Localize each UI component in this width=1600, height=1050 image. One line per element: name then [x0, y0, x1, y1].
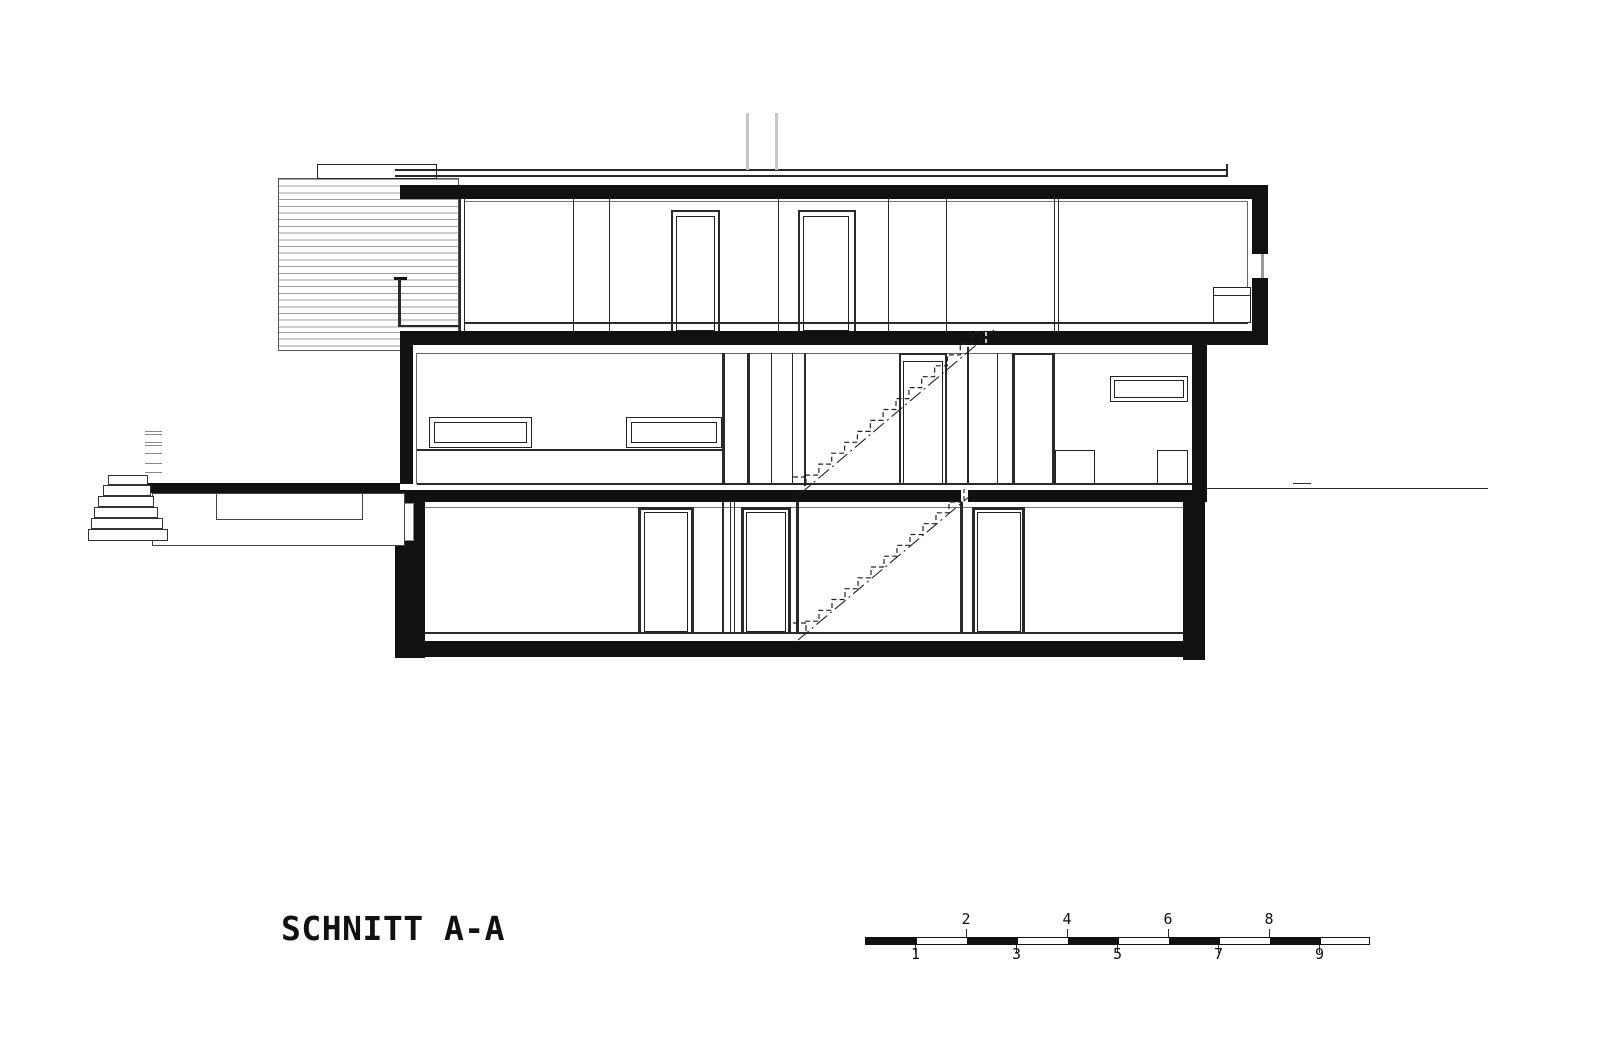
door-leaf: [903, 361, 943, 484]
basement-right-wall: [1183, 502, 1205, 660]
door-jamb: [741, 507, 744, 632]
door-jamb: [1012, 353, 1015, 484]
door-jamb: [671, 210, 673, 331]
vent-pipe-1: [746, 113, 749, 170]
door-lintel: [741, 507, 791, 510]
terrace-deck-line: [398, 325, 460, 327]
upper-floor-slab: [400, 331, 1268, 345]
upper-right-wall-bottom: [1252, 278, 1268, 331]
sideboard-2-inner: [631, 422, 717, 443]
door-leaf: [803, 216, 849, 331]
basement-ceiling-line: [425, 507, 1183, 508]
partition-line: [609, 199, 610, 331]
scale-bar-segment: [1169, 938, 1220, 944]
scale-label: 8: [1259, 912, 1279, 927]
ground-line-step: [1293, 483, 1311, 484]
exterior-step: [103, 485, 151, 496]
partition-line: [722, 353, 725, 485]
door-lintel: [899, 353, 947, 355]
ladder-rung: [145, 463, 162, 464]
stair-middle-slope-line: [800, 330, 994, 494]
upper-right-wall-top: [1252, 199, 1268, 254]
scale-bar-segment: [1068, 938, 1119, 944]
floor-cabinet-1: [1055, 450, 1095, 484]
upper-floor-line: [465, 322, 1248, 324]
stair-opening-slit: [961, 490, 968, 502]
scale-tick: [1168, 929, 1169, 937]
ground-line-right: [1207, 488, 1488, 489]
section-drawing-sheet: SCHNITT A-A 2 4 6 8 1 3 5 7 9: [0, 0, 1600, 1050]
partition-line: [946, 199, 947, 331]
scale-bar-segment: [866, 938, 917, 944]
ladder-rung: [145, 453, 162, 454]
door-jamb: [691, 507, 694, 632]
partition-line: [730, 502, 731, 632]
door-jamb: [718, 210, 720, 331]
middle-right-wall: [1192, 345, 1207, 490]
stair-basement-slope-line: [798, 496, 970, 640]
stair-basement-steps: [793, 502, 962, 632]
partition-line: [734, 502, 735, 632]
scale-tick: [966, 929, 967, 937]
terrace-railing-post: [398, 279, 401, 327]
wall-double-line-1: [1054, 199, 1055, 331]
scale-bar-segment: [967, 938, 1018, 944]
partition-line: [997, 353, 998, 484]
wall-double-line-2: [1058, 199, 1059, 331]
door-jamb: [798, 210, 800, 331]
stair-middle-steps: [793, 333, 986, 486]
exterior-step: [94, 507, 158, 518]
ladder-rung: [145, 442, 162, 443]
drawing-title: SCHNITT A-A: [281, 909, 505, 948]
door-leaf: [977, 512, 1021, 632]
middle-wall-inner-line: [416, 353, 417, 484]
door-leaf: [676, 216, 715, 331]
terrace-deck-hatch-lower: [278, 332, 401, 351]
middle-left-wall: [400, 345, 413, 484]
exterior-step: [91, 518, 163, 529]
stairwell-wall-line: [796, 502, 799, 632]
door-lintel: [671, 210, 720, 212]
door-jamb: [899, 353, 901, 485]
roof-edge-line-1: [395, 169, 1228, 171]
scale-label: 7: [1209, 947, 1229, 962]
roof-edge-tick: [1226, 164, 1228, 176]
partition-line: [967, 347, 969, 484]
upper-cabinet: [1213, 287, 1251, 323]
scale-label: 3: [1007, 947, 1027, 962]
partition-line: [792, 353, 793, 485]
ladder-rung: [145, 431, 162, 432]
roof-parapet-box: [317, 164, 437, 179]
ladder-rung: [145, 434, 162, 435]
door-lintel: [638, 507, 694, 510]
exterior-step: [98, 496, 154, 507]
upper-glass-wall-line-2: [464, 199, 466, 332]
door-jamb: [638, 507, 641, 632]
door-leaf: [746, 512, 786, 632]
upper-cabinet-top-line: [1213, 295, 1251, 296]
roof-slab: [400, 185, 1268, 199]
door-jamb: [1022, 507, 1025, 632]
scale-label: 1: [906, 947, 926, 962]
scale-bar-segment: [1270, 938, 1321, 944]
ladder-rung: [145, 445, 162, 446]
door-lintel: [972, 507, 1025, 510]
partition-line: [771, 353, 772, 485]
pool-basin: [216, 493, 363, 520]
middle-window-frame-inner: [1114, 380, 1184, 398]
upper-right-window-glass: [1261, 254, 1264, 278]
scale-label: 2: [956, 912, 976, 927]
vent-pipe-2: [775, 113, 778, 170]
terrace-deck-hatch: [278, 178, 459, 332]
roof-edge-line-2: [395, 175, 1228, 177]
counter-line: [417, 449, 723, 451]
terrace-slab-band: [147, 483, 400, 493]
scale-tick: [1067, 929, 1068, 937]
basement-floor-line: [425, 632, 1183, 634]
middle-floor-line: [417, 483, 1192, 485]
door-jamb: [972, 507, 975, 632]
scale-tick: [1269, 929, 1270, 937]
partition-line: [573, 199, 574, 331]
door-lintel: [798, 210, 856, 212]
door-jamb: [945, 353, 947, 485]
exterior-step: [108, 475, 148, 485]
door-jamb: [854, 210, 856, 331]
door-leaf: [644, 512, 688, 632]
floor-cabinet-2: [1157, 450, 1188, 484]
upper-glass-wall-line-1: [459, 199, 461, 332]
door-jamb: [788, 507, 791, 632]
partition-line: [778, 199, 779, 331]
scale-label: 4: [1057, 912, 1077, 927]
upper-ceiling-line: [465, 201, 1248, 202]
partition-line: [888, 199, 889, 331]
sideboard-1-inner: [434, 422, 527, 443]
stairwell-wall-line: [960, 502, 963, 632]
exterior-step: [88, 529, 168, 541]
scale-label: 6: [1158, 912, 1178, 927]
scale-bar: [865, 937, 1370, 945]
scale-label: 5: [1108, 947, 1128, 962]
door-lintel: [1012, 353, 1055, 355]
partition-line: [722, 502, 724, 632]
basement-bottom-slab: [395, 641, 1205, 657]
stairwell-wall-line: [804, 353, 806, 486]
ladder-rung: [145, 472, 162, 473]
partition-line: [747, 353, 750, 485]
basement-top-slab: [395, 490, 1207, 502]
scale-label: 9: [1310, 947, 1330, 962]
